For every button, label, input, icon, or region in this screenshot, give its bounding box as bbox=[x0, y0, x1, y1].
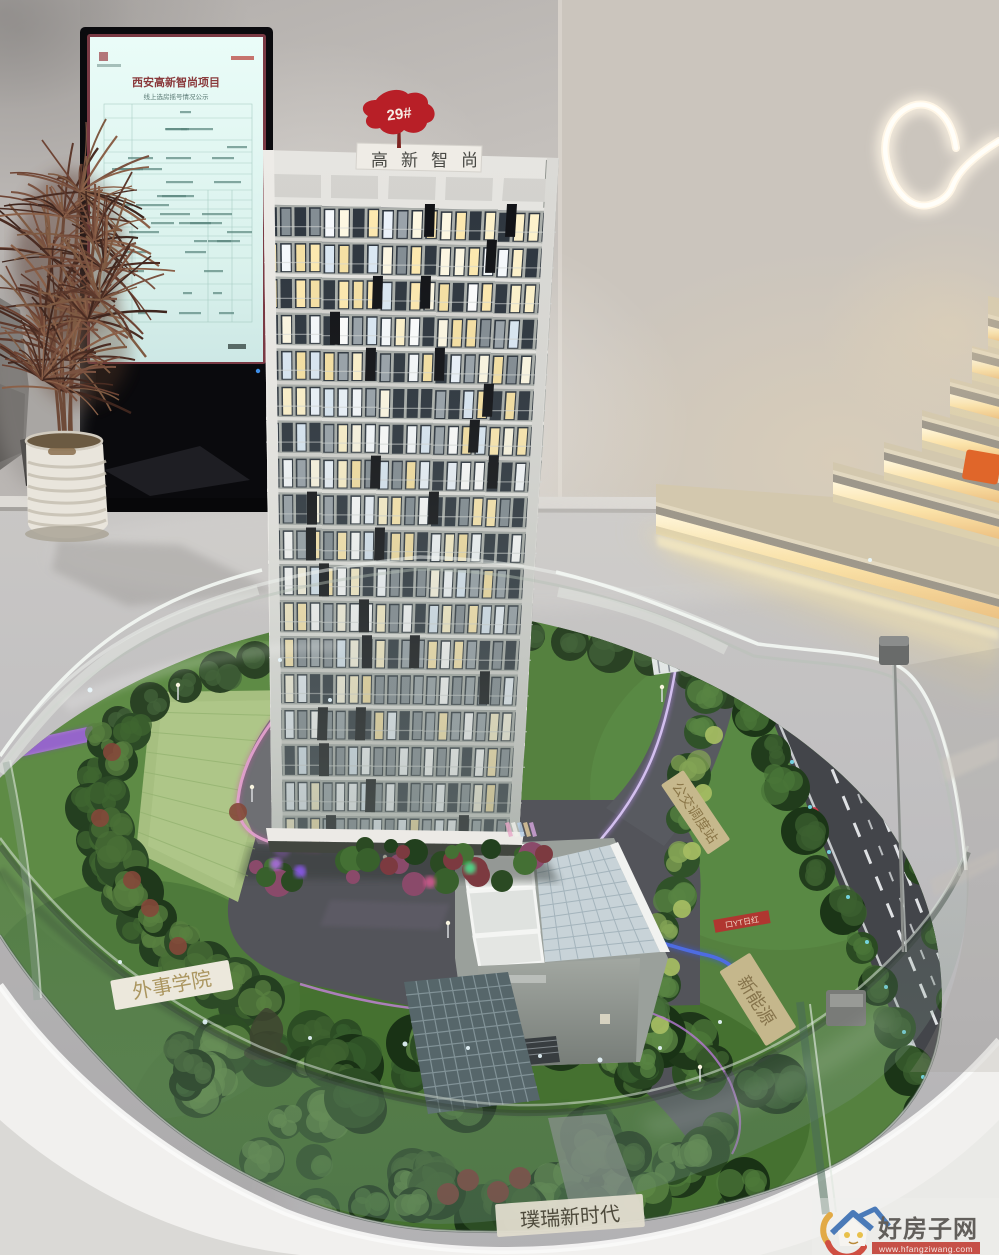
svg-text:好房子网: 好房子网 bbox=[877, 1215, 978, 1243]
svg-text:线上选房摇号情况公示: 线上选房摇号情况公示 bbox=[144, 92, 210, 101]
svg-text:www.hfangziwang.com: www.hfangziwang.com bbox=[878, 1244, 973, 1254]
svg-text:29#: 29# bbox=[386, 104, 414, 124]
svg-text:西安高新智尚项目: 西安高新智尚项目 bbox=[132, 75, 220, 89]
